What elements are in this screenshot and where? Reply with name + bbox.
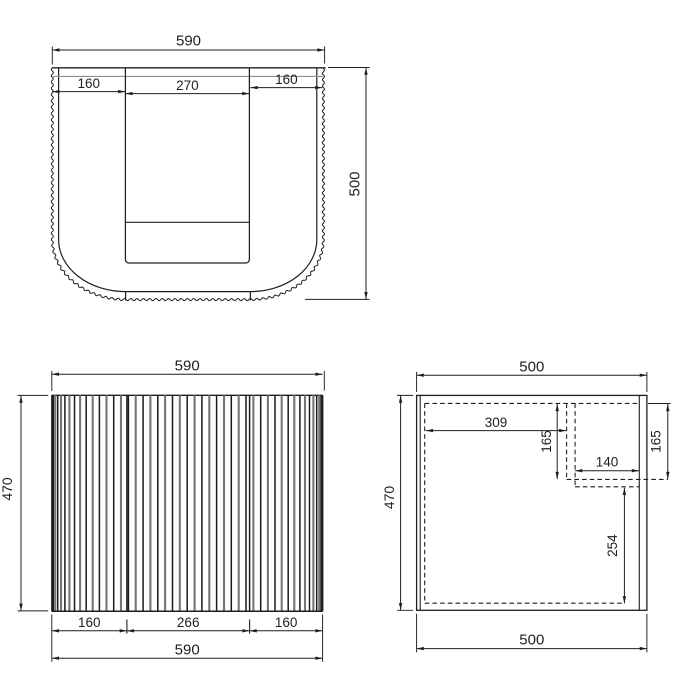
svg-text:590: 590	[175, 357, 200, 374]
svg-text:160: 160	[275, 72, 298, 87]
svg-text:266: 266	[177, 615, 200, 630]
svg-text:160: 160	[275, 615, 298, 630]
svg-text:500: 500	[519, 358, 544, 375]
svg-text:590: 590	[176, 33, 201, 50]
svg-text:270: 270	[176, 78, 199, 93]
svg-text:470: 470	[381, 486, 397, 510]
svg-text:140: 140	[596, 455, 619, 470]
svg-text:165: 165	[648, 430, 663, 453]
svg-text:160: 160	[78, 615, 101, 630]
svg-text:165: 165	[539, 430, 554, 453]
svg-text:470: 470	[0, 477, 15, 501]
svg-text:254: 254	[605, 534, 620, 557]
svg-text:160: 160	[78, 76, 101, 91]
svg-text:500: 500	[347, 171, 364, 196]
svg-text:309: 309	[485, 415, 508, 430]
svg-text:500: 500	[519, 632, 544, 649]
svg-text:590: 590	[175, 641, 200, 658]
